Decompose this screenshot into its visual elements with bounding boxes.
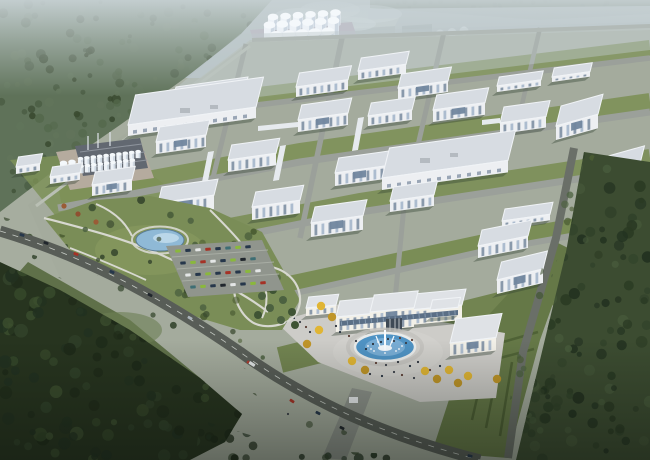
factory-building-window-strip — [344, 115, 347, 124]
southeast-canopy-tuft — [615, 296, 622, 303]
conifer-cluster — [266, 304, 274, 312]
parked-car — [230, 258, 236, 261]
parked-car — [195, 248, 201, 251]
factory-building-window-strip — [322, 223, 325, 234]
tank-row-front — [91, 163, 97, 172]
factory-building-window-strip — [397, 67, 400, 73]
factory-building-window-strip — [387, 184, 391, 188]
factory-building-window-strip — [534, 218, 537, 221]
bottom-forest-canopy-tuft — [84, 328, 93, 337]
factory-building-window-strip — [315, 224, 318, 235]
factory-building-window-strip — [346, 173, 349, 183]
forest-canopy-tuft — [12, 189, 16, 193]
park-trees-tuft — [106, 220, 114, 228]
factory-building-window-strip — [479, 105, 482, 114]
scene-paint-root — [0, 0, 650, 460]
silo-row-back-dome — [330, 9, 341, 16]
factory-building-window-strip — [202, 137, 205, 146]
factory-building-window-strip — [588, 119, 591, 131]
southeast-canopy-tuft — [604, 182, 616, 194]
gate-building-window-strip — [317, 309, 320, 314]
gate-building-window-strip — [310, 310, 313, 315]
parked-car — [230, 283, 236, 286]
factory-building-window-strip — [394, 202, 397, 210]
tank-row-back — [103, 154, 109, 162]
factory-building-window-strip — [510, 241, 513, 250]
tank-row-back-dome — [129, 151, 135, 154]
factory-building-window-strip — [386, 115, 389, 122]
forest-canopy-tuft — [22, 109, 28, 115]
factory-building-window-strip — [302, 121, 305, 130]
factory-building-window-strip — [472, 106, 475, 115]
factory-building-window-strip — [408, 200, 411, 208]
tank-row-back — [97, 155, 103, 163]
park-trees-tuft — [100, 255, 105, 260]
parked-car — [245, 270, 251, 273]
factory-building-window-strip — [372, 117, 375, 124]
road-lower-treeline-tuft — [170, 322, 177, 329]
conifer-cluster — [279, 296, 287, 304]
autumn-trees — [328, 313, 336, 321]
factory-building-window-strip — [330, 117, 333, 126]
factory-building-window-strip — [529, 274, 532, 285]
parked-car — [215, 272, 221, 275]
factory-building-window-strip — [430, 85, 433, 93]
tank-row-front-dome — [129, 158, 135, 161]
factory-building-window-strip — [143, 128, 147, 132]
road-upper-treeline-tuft — [230, 329, 236, 335]
tank-row-back — [129, 151, 135, 159]
factory-building-window-strip — [337, 116, 340, 125]
tank-row-back-dome — [78, 157, 84, 160]
factory-building-window-strip — [328, 84, 331, 91]
forest-canopy-tuft — [44, 98, 53, 107]
factory-building-window-strip — [447, 175, 451, 179]
factory-building-window-strip — [393, 114, 396, 121]
tank-row-front-dome — [110, 161, 116, 164]
tank-row-back — [116, 152, 122, 160]
factory-building-window-strip — [96, 186, 99, 194]
southeast-canopy-tuft — [590, 263, 595, 268]
parked-car — [185, 273, 191, 276]
factory-building-window-strip — [307, 87, 310, 94]
road-upper-treeline-tuft — [203, 311, 210, 318]
parked-car — [210, 284, 216, 287]
southeast-canopy-tuft — [634, 181, 645, 192]
park-trees-tuft — [96, 258, 100, 262]
southeast-canopy-tuft — [605, 206, 617, 218]
factory-building-window-strip — [400, 113, 403, 120]
factory-building-window-strip — [291, 203, 294, 213]
park-trees-tuft — [157, 237, 162, 242]
silo-row-mid-dome — [315, 18, 327, 25]
silo-row-back-dome — [268, 14, 279, 21]
factory-building-window-strip — [489, 246, 492, 255]
parked-car — [210, 260, 216, 263]
factory-building-window-strip — [437, 84, 440, 92]
forest-canopy-tuft — [10, 169, 16, 175]
red-maple-trees — [75, 211, 80, 216]
parked-car — [235, 270, 241, 273]
parked-car — [220, 284, 226, 287]
factory-building-window-strip — [508, 279, 511, 290]
factory-building-window-strip — [501, 87, 504, 90]
parked-car — [250, 257, 256, 260]
factory-building-window-strip — [335, 83, 338, 90]
plaza-people — [399, 337, 401, 339]
southeast-canopy-tuft — [624, 281, 634, 291]
factory-building-window-strip — [284, 204, 287, 214]
forest-canopy-tuft — [53, 132, 59, 138]
forest-canopy-tuft — [44, 124, 52, 132]
parked-car — [215, 247, 221, 250]
factory-building-window-strip — [524, 239, 527, 248]
right-road-trees-tuft — [536, 292, 543, 299]
bottom-forest-canopy-tuft — [3, 318, 14, 329]
tank-row-front — [85, 164, 91, 173]
factory-building-window-strip — [379, 116, 382, 123]
factory-building-window-strip — [124, 182, 127, 190]
plaza-people — [309, 331, 311, 333]
tank-row-front — [123, 159, 129, 168]
forest-canopy-tuft — [82, 122, 87, 127]
gate-building-window-strip — [331, 308, 334, 313]
silo-row-back-dome — [280, 13, 291, 20]
conifer-cluster — [277, 316, 285, 324]
park-trees-tuft — [245, 232, 253, 240]
factory-building-window-strip — [195, 138, 198, 147]
park-trees-tuft — [175, 289, 183, 297]
factory-building-window-strip — [567, 124, 570, 136]
layer-atmosphere — [0, 340, 650, 460]
park-trees-tuft — [230, 310, 235, 315]
rooftop-unit-4 — [450, 153, 458, 157]
bottom-forest-canopy-tuft — [33, 307, 44, 318]
park-trees-tuft — [89, 204, 96, 211]
factory-building-window-strip — [409, 88, 412, 96]
tank-row-front — [104, 161, 110, 170]
southeast-canopy-tuft — [628, 254, 638, 264]
tank-row-back — [135, 150, 141, 158]
factory-building-window-strip — [167, 142, 170, 151]
forest-canopy-tuft — [16, 122, 24, 130]
southeast-canopy-tuft — [569, 288, 580, 299]
factory-building-window-strip — [517, 240, 520, 249]
tank-row-back — [110, 153, 116, 161]
road-lower-treeline-tuft — [150, 312, 155, 317]
factory-building-window-strip — [160, 143, 163, 152]
factory-building-window-strip — [539, 119, 542, 127]
forest-canopy-tuft — [35, 100, 42, 107]
factory-building-window-strip — [508, 86, 511, 89]
factory-building-window-strip — [496, 244, 499, 253]
southeast-canopy-tuft — [641, 297, 648, 304]
silo-row-mid-dome — [264, 21, 276, 28]
conifer-cluster — [254, 311, 262, 319]
factory-building-window-strip — [376, 70, 379, 76]
park-trees-tuft — [167, 212, 174, 219]
factory-building-window-strip — [529, 83, 532, 86]
factory-building-window-strip — [444, 110, 447, 119]
southeast-canopy-tuft — [603, 165, 612, 174]
factory-building-window-strip — [34, 166, 37, 170]
southeast-canopy-tuft — [607, 327, 614, 334]
plaza-people — [335, 325, 337, 327]
factory-building-window-strip — [401, 201, 404, 209]
tank-row-front-dome — [91, 163, 97, 166]
rooftop-unit-2 — [210, 105, 218, 109]
park-trees-tuft — [232, 296, 239, 303]
tank-row-back — [123, 151, 129, 159]
forest-canopy-tuft — [35, 114, 44, 123]
factory-building-window-strip — [429, 197, 432, 205]
factory-building-window-strip — [501, 281, 504, 292]
tank-row-back-dome — [135, 150, 141, 153]
southeast-canopy-tuft — [594, 251, 602, 259]
factory-building-window-strip — [444, 83, 447, 91]
parked-car — [195, 273, 201, 276]
conifer-cluster — [288, 308, 296, 316]
forest-canopy-tuft — [98, 120, 106, 128]
factory-building-window-strip — [532, 120, 535, 128]
southeast-canopy-tuft — [600, 237, 607, 244]
autumn-trees — [315, 326, 323, 334]
parked-car — [180, 261, 186, 264]
parked-car — [205, 272, 211, 275]
parked-car — [260, 281, 266, 284]
factory-building-window-strip — [503, 243, 506, 252]
conifer-cluster — [291, 321, 299, 329]
parked-car — [200, 285, 206, 288]
park-trees-tuft — [137, 196, 145, 204]
factory-building-window-strip — [482, 247, 485, 256]
parked-car — [205, 248, 211, 251]
factory-building-window-strip — [256, 208, 259, 218]
vignette — [0, 340, 650, 460]
tank-row-back-dome — [123, 151, 129, 154]
factory-building-window-strip — [374, 169, 377, 179]
southeast-canopy-tuft — [617, 231, 628, 242]
forest-canopy-tuft — [109, 116, 115, 122]
factory-building-window-strip — [515, 85, 518, 88]
factory-building-window-strip — [390, 68, 393, 74]
southeast-canopy-tuft — [555, 318, 561, 324]
factory-building-window-strip — [362, 72, 365, 78]
factory-building-window-strip — [270, 206, 273, 216]
forest-canopy-tuft — [113, 99, 121, 107]
rooftop-unit-1 — [180, 108, 190, 113]
plaza-people — [305, 326, 307, 328]
factory-building-window-strip — [309, 120, 312, 129]
factory-building-window-strip — [525, 121, 528, 129]
plaza-people — [339, 331, 341, 333]
factory-building-window-strip — [20, 168, 23, 172]
parked-car — [240, 282, 246, 285]
factory-building-window-strip — [75, 175, 78, 179]
factory-building-window-strip — [407, 112, 410, 119]
factory-building-window-strip — [477, 171, 481, 175]
factory-building-window-strip — [522, 84, 525, 87]
factory-building-window-strip — [243, 114, 247, 118]
right-road-trees-tuft — [567, 191, 574, 198]
factory-building-window-strip — [260, 157, 263, 166]
silo-row-mid-dome — [302, 19, 314, 26]
autumn-trees — [317, 302, 325, 310]
southeast-canopy-tuft — [594, 303, 600, 309]
factory-building-window-strip — [457, 174, 461, 178]
right-road-trees-tuft — [561, 201, 569, 209]
plaza-people — [348, 335, 350, 337]
factory-building-window-strip — [117, 183, 120, 191]
factory-building-window-strip — [68, 176, 71, 180]
tank-row-back-dome — [91, 155, 97, 158]
right-road-trees-tuft — [569, 207, 574, 212]
aerial-render-frame — [0, 0, 650, 460]
park-trees-tuft — [148, 260, 152, 264]
forest-canopy-tuft — [116, 113, 121, 118]
road-lower-treeline-tuft — [118, 285, 125, 292]
forest-canopy-tuft — [66, 130, 76, 140]
factory-building-window-strip — [27, 167, 30, 171]
tank-row-front-dome — [123, 159, 129, 162]
factory-building-window-strip — [61, 177, 64, 181]
silo-row-mid-dome — [328, 17, 340, 24]
parked-car — [185, 249, 191, 252]
bottom-forest-canopy-tuft — [9, 268, 15, 274]
factory-building-window-strip — [54, 178, 57, 182]
bottom-forest-canopy-tuft — [117, 334, 123, 340]
silo-row-back-dome — [318, 10, 329, 17]
forest-canopy-tuft — [74, 111, 80, 117]
factory-building-window-strip — [415, 199, 418, 207]
southeast-canopy-tuft — [585, 227, 595, 237]
rooftop-unit-3 — [420, 158, 430, 163]
park-trees-tuft — [111, 249, 118, 256]
tank-row-back-dome — [84, 156, 90, 159]
factory-building-window-strip — [277, 205, 280, 215]
factory-building-window-strip — [321, 85, 324, 92]
tank-row-back-dome — [97, 155, 103, 158]
factory-building-window-strip — [246, 159, 249, 168]
factory-building-window-strip — [497, 168, 501, 172]
silo-row-back-dome — [293, 12, 304, 19]
tank-row-front-dome — [85, 164, 91, 167]
bottom-forest-canopy-tuft — [14, 324, 28, 338]
factory-building-window-strip — [233, 116, 237, 120]
southeast-canopy-tuft — [601, 299, 609, 307]
gate-building-window-strip — [324, 308, 327, 313]
factory-building-window-strip — [188, 139, 191, 148]
bottom-forest-canopy-tuft — [129, 334, 136, 341]
red-maple-trees — [61, 203, 66, 208]
tank-row-front-dome — [97, 162, 103, 165]
southeast-canopy-tuft — [583, 237, 589, 243]
factory-building-window-strip — [357, 218, 360, 229]
tank-row-back-dome — [116, 152, 122, 155]
factory-building-window-strip — [263, 207, 266, 217]
forest-canopy-tuft — [29, 113, 36, 120]
factory-building-window-strip — [350, 219, 353, 230]
park-trees-tuft — [200, 304, 207, 311]
forest-canopy-tuft — [97, 101, 105, 109]
forest-canopy-tuft — [106, 102, 114, 110]
parked-car — [255, 269, 261, 272]
silo-row-back-dome — [305, 11, 316, 18]
southeast-canopy-tuft — [620, 254, 626, 260]
factory-building-window-strip — [267, 156, 270, 165]
southeast-canopy-tuft — [599, 227, 605, 233]
parked-car — [175, 249, 181, 252]
southeast-canopy-tuft — [612, 261, 619, 268]
factory-building-window-strip — [487, 170, 491, 174]
factory-building-window-strip — [342, 82, 345, 89]
tank-row-back-dome — [110, 153, 116, 156]
silo-row-mid-dome — [289, 20, 301, 27]
parked-car — [245, 245, 251, 248]
factory-building-window-strip — [213, 119, 217, 123]
factory-building-window-strip — [314, 86, 317, 93]
factory-building-window-strip — [223, 117, 227, 121]
factory-building-window-strip — [339, 174, 342, 184]
factory-building-window-strip — [367, 170, 370, 180]
bottom-forest-canopy-tuft — [37, 297, 47, 307]
tank-row-front — [117, 160, 123, 169]
factory-building-window-strip — [422, 198, 425, 206]
factory-building-window-strip — [541, 217, 544, 220]
factory-building-window-strip — [239, 160, 242, 169]
plaza-people — [387, 338, 389, 340]
park-trees-tuft — [83, 227, 88, 232]
parked-car — [200, 260, 206, 263]
parked-car — [225, 271, 231, 274]
factory-building-window-strip — [560, 126, 563, 138]
factory-building-window-strip — [369, 71, 372, 77]
tank-row-front — [129, 158, 135, 167]
parked-car — [235, 246, 241, 249]
industrial-park-aerial-render — [0, 0, 650, 460]
parked-car — [250, 282, 256, 285]
southeast-canopy-tuft — [623, 320, 632, 329]
tank-row-back — [84, 156, 90, 164]
tank-row-front — [97, 162, 103, 171]
red-maple-trees — [93, 219, 98, 224]
southeast-canopy-tuft — [639, 198, 645, 204]
forest-canopy-tuft — [28, 105, 35, 112]
factory-building-window-strip — [518, 122, 521, 130]
forest-canopy-tuft — [45, 141, 51, 147]
southeast-canopy-tuft — [617, 327, 625, 335]
silo-row-mid-dome — [277, 20, 289, 27]
factory-building-window-strip — [437, 111, 440, 120]
factory-building-window-strip — [383, 69, 386, 75]
parked-car — [190, 261, 196, 264]
plaza-people — [299, 321, 301, 323]
southeast-canopy-tuft — [577, 283, 585, 291]
factory-building-window-strip — [402, 89, 405, 97]
factory-building-window-strip — [437, 177, 441, 181]
factory-building-window-strip — [103, 185, 106, 193]
bottom-forest-canopy-tuft — [14, 288, 26, 300]
factory-building-window-strip — [153, 127, 157, 131]
factory-building-window-strip — [133, 130, 137, 134]
tank-row-back — [91, 155, 97, 163]
tank-row-back-dome — [103, 154, 109, 157]
parked-car — [225, 246, 231, 249]
factory-building-window-strip — [253, 158, 256, 167]
factory-building-window-strip — [467, 173, 471, 177]
tank-row-front-dome — [104, 161, 110, 164]
factory-building-window-strip — [232, 161, 235, 170]
